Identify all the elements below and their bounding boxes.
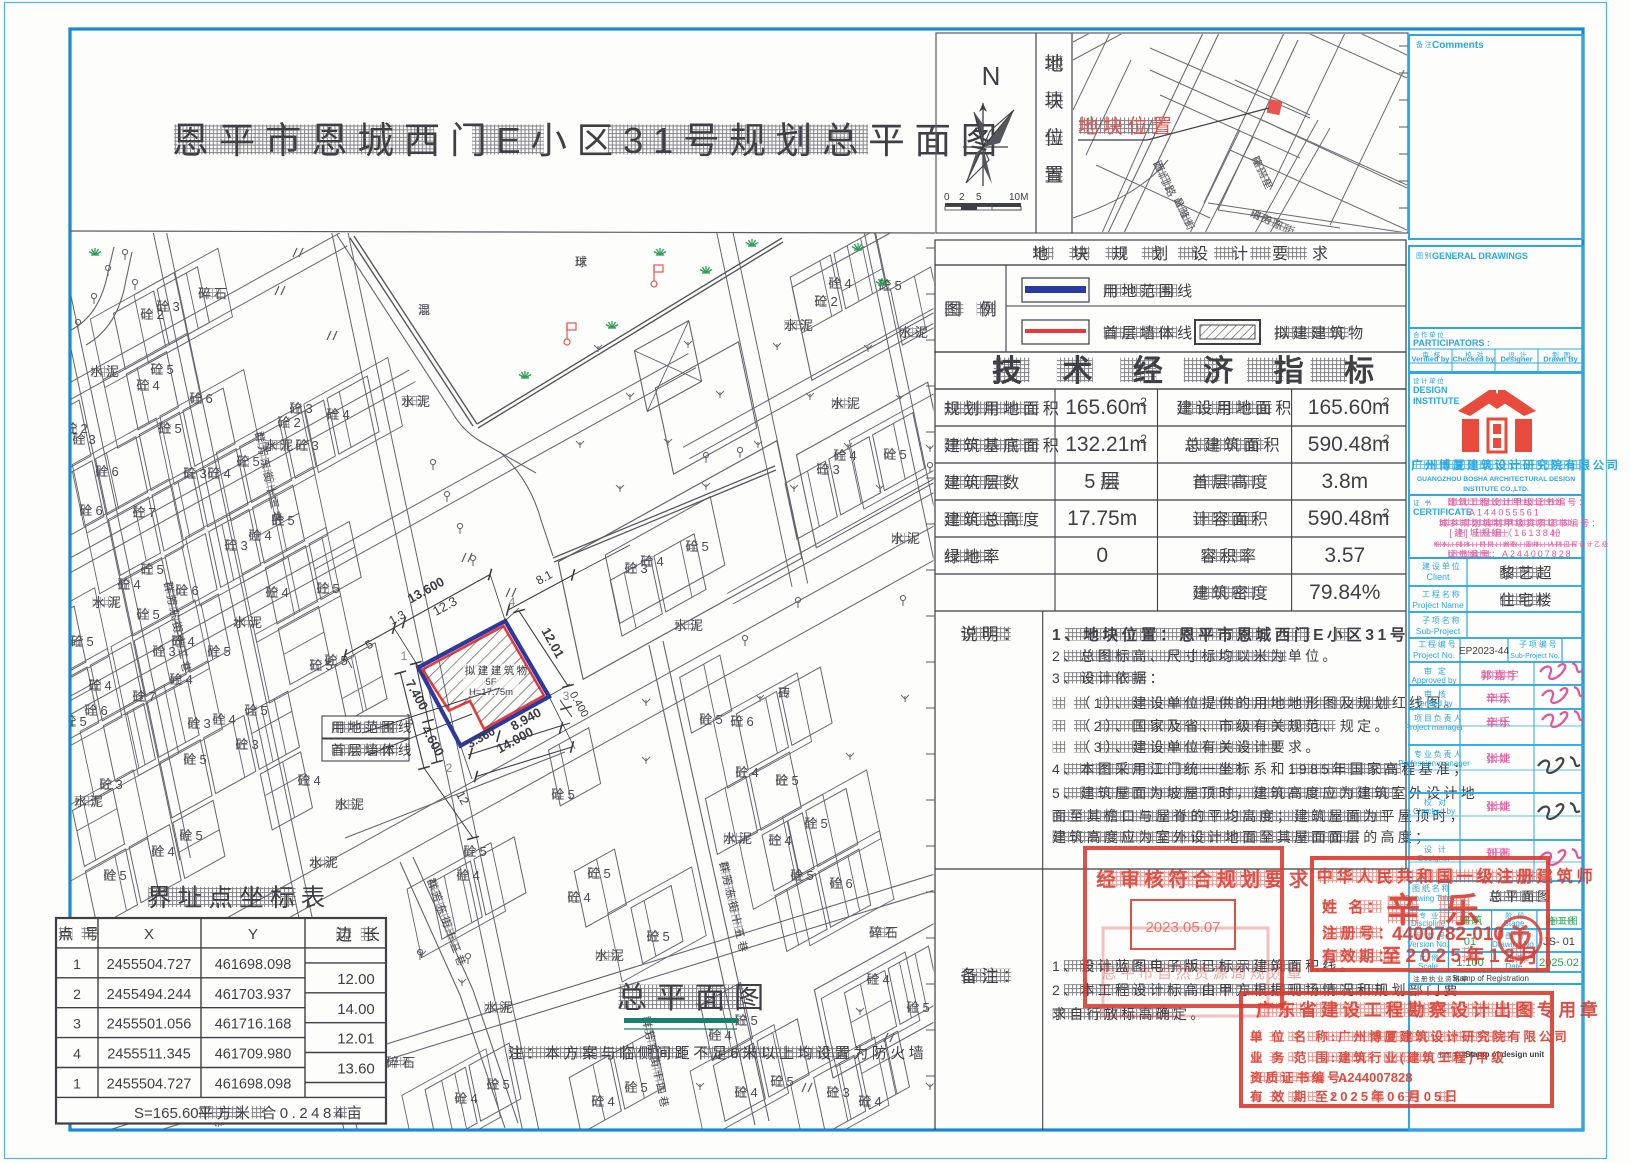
svg-text:砼3: 砼3 [187,716,213,731]
svg-text:砼4: 砼4 [735,765,761,780]
svg-text:4400782-010: 4400782-010 [1392,924,1504,945]
svg-text:砼6: 砼6 [730,714,756,729]
svg-text:3.57: 3.57 [1324,544,1365,567]
svg-text:2、总图标高、尺寸标均以米为单位。: 2、总图标高、尺寸标均以米为单位。 [1052,648,1340,664]
svg-text:位: 位 [1045,127,1068,149]
svg-text:审 核: 审 核 [1424,689,1448,699]
svg-text:审 定: 审 定 [1424,666,1448,676]
svg-text:姓 名：: 姓 名： [1322,898,1385,916]
svg-text:界址点坐标表: 界址点坐标表 [147,884,332,912]
svg-text:注册号：: 注册号： [1322,924,1396,942]
svg-text:建筑层数: 建筑层数 [944,474,1023,492]
svg-text:城乡规划编制甲级资质证书编号：: 城乡规划编制甲级资质证书编号： [1439,517,1602,528]
svg-text:总平面图: 总平面图 [617,982,773,1015]
svg-text:砼3: 砼3 [295,438,321,453]
svg-text:砼5: 砼5 [624,1080,650,1095]
svg-text:Designer: Designer [1500,355,1532,364]
svg-text:证 书: 证 书 [1413,498,1432,507]
svg-text:（2）、国家及省、市级有关规范、规定。: （2）、国家及省、市级有关规范、规定。 [1052,718,1392,734]
svg-text:拟建建筑物: 拟建建筑物 [465,664,530,677]
svg-text:水泥: 水泥 [484,1000,516,1015]
svg-text:PARTICIPATORS :: PARTICIPATORS : [1413,338,1490,348]
svg-text:水泥: 水泥 [233,615,265,630]
svg-text:建筑基底面积: 建筑基底面积 [944,437,1063,455]
svg-text:461698.098: 461698.098 [215,1077,292,1093]
svg-text:砼4: 砼4 [591,1094,617,1109]
svg-text:砼3: 砼3 [183,466,209,481]
svg-text:面至其檐口与屋脊的平均高度；建筑屋面为平屋顶时，: 面至其檐口与屋脊的平均高度；建筑屋面为平屋顶时， [1052,808,1467,825]
svg-text:12.01: 12.01 [538,625,567,661]
svg-text:经审核符合规划要求: 经审核符合规划要求 [1096,868,1313,891]
svg-text:砼2: 砼2 [140,307,166,322]
svg-text:461709.980: 461709.980 [215,1047,292,1063]
svg-text:计容面积: 计容面积 [1193,511,1272,529]
svg-text:Sub-Project No.: Sub-Project No. [1510,653,1559,660]
svg-text:住宅楼: 住宅楼 [1500,592,1556,609]
svg-text:12: 12 [453,789,472,808]
svg-text:有 效 期 至:: 有 效 期 至: [1250,1089,1338,1104]
svg-text:砼3: 砼3 [289,401,315,416]
svg-text:2455504.727: 2455504.727 [107,1077,192,1093]
svg-text:1: 1 [73,1076,81,1092]
svg-text:砼4: 砼4 [326,407,352,422]
svg-text:砼5: 砼5 [770,1074,796,1089]
svg-text:Client: Client [1426,572,1450,582]
svg-text:西门路: 西门路 [1150,158,1180,201]
svg-text:79.84%: 79.84% [1309,581,1380,604]
svg-text:资质证书编号:: 资质证书编号: [1250,1070,1350,1085]
svg-text:建设单位: 建设单位 [1422,561,1462,571]
svg-text:Project No.: Project No. [1413,650,1455,660]
svg-text:碎石: 碎石 [386,1055,418,1070]
svg-text:水泥: 水泥 [335,797,367,812]
svg-text:12.00: 12.00 [337,971,375,988]
svg-text:砼5: 砼5 [790,868,816,883]
svg-text:拟建建筑物: 拟建建筑物 [1274,325,1367,342]
svg-text:砼4: 砼4 [858,1094,884,1109]
svg-text:砼3: 砼3 [235,737,261,752]
svg-text:注：本方案与临侧间距不足6米以上均设置为防火墙: 注：本方案与临侧间距不足6米以上均设置为防火墙 [508,1044,927,1062]
svg-text:总平面图: 总平面图 [1489,889,1553,904]
svg-text:首层墙体线: 首层墙体线 [331,743,414,758]
svg-text:建筑工程设计甲级证书编号：: 建筑工程设计甲级证书编号： [1448,496,1589,507]
svg-text:业 务 范 围:建筑行业(建筑工程)甲级: 业 务 范 围:建筑行业(建筑工程)甲级 [1250,1050,1507,1065]
svg-text:水泥: 水泥 [723,831,755,846]
svg-text:INSTITUTE CO.,LTD.: INSTITUTE CO.,LTD. [1463,486,1529,493]
svg-text:CERTIFICATE: CERTIFICATE [1413,507,1472,517]
svg-text:0: 0 [1096,544,1108,567]
svg-text:砼5: 砼5 [646,929,672,944]
svg-text:590.48m: 590.48m [1308,507,1390,530]
svg-text:461698.098: 461698.098 [215,957,292,973]
svg-text:隆兴里: 隆兴里 [1249,154,1276,193]
svg-text:张婕: 张婕 [1486,751,1513,765]
svg-text:施工图: 施工图 [1547,915,1580,926]
svg-text:砼5: 砼5 [685,539,711,554]
svg-text:1.3: 1.3 [386,607,408,627]
svg-text:5: 5 [976,192,982,203]
svg-text:项目负责人: 项目负责人 [1414,713,1463,723]
svg-text:砼5: 砼5 [324,653,350,668]
svg-text:S=165.60: S=165.60 [134,1105,199,1122]
svg-text:17.75m: 17.75m [1067,507,1137,530]
svg-text:平方米 合0.2484亩: 平方米 合0.2484亩 [198,1104,365,1122]
svg-text:砼4: 砼4 [456,868,482,883]
svg-text:砼2: 砼2 [277,415,303,430]
svg-text:边 长: 边 长 [336,926,384,944]
svg-text:Stamp of Registration: Stamp of Registration [1452,974,1529,983]
svg-text:2: 2 [1140,395,1147,409]
svg-text:8.1: 8.1 [533,567,555,587]
svg-text:砼5: 砼5 [179,828,205,843]
svg-text:A244007828: A244007828 [1338,1070,1412,1085]
svg-text:球: 球 [575,255,590,269]
svg-text:Sub-Project: Sub-Project [1416,626,1461,636]
svg-text:砼3: 砼3 [816,462,842,477]
svg-text:Comments: Comments [1432,40,1484,51]
svg-text:容积率: 容积率 [1201,548,1260,566]
svg-text:Y: Y [248,926,258,943]
svg-text:砼5: 砼5 [136,607,162,622]
svg-text:建筑总高度: 建筑总高度 [944,511,1043,529]
svg-text:13.60: 13.60 [337,1061,375,1078]
svg-text:水泥: 水泥 [831,396,863,411]
svg-text:14.00: 14.00 [337,1001,375,1018]
svg-text:砼4: 砼4 [136,378,162,393]
svg-text:用地范围线: 用地范围线 [1103,283,1196,300]
svg-text:砼4: 砼4 [567,890,593,905]
svg-text:1: 1 [401,649,408,663]
svg-text:砼5: 砼5 [140,562,166,577]
svg-text:砼5: 砼5 [551,787,577,802]
svg-text:砼7: 砼7 [132,505,158,520]
svg-text:碎石: 碎石 [869,925,901,940]
svg-text:图 例: 图 例 [944,300,1004,319]
svg-text:碎石: 碎石 [198,286,230,301]
svg-text:砼4: 砼4 [833,448,859,463]
svg-text:132.21m: 132.21m [1065,433,1147,456]
svg-text:砼3: 砼3 [72,432,98,447]
svg-text:砼5: 砼5 [906,1000,932,1015]
svg-text:恩平市自然资源局规划章: 恩平市自然资源局规划章 [1102,964,1306,982]
svg-text:砼5: 砼5 [734,1013,760,1028]
svg-text:2455501.056: 2455501.056 [107,1017,192,1033]
svg-text:10M: 10M [1009,192,1028,203]
svg-text:Project Name: Project Name [1412,600,1464,610]
svg-text:给水、排水、桥梁、道路、园林、人防工程设计乙级: 给水、排水、桥梁、道路、园林、人防工程设计乙级 [1434,541,1610,549]
svg-text:求自行放标高确定。: 求自行放标高确定。 [1052,1006,1208,1022]
svg-text:砼5: 砼5 [316,581,342,596]
svg-text:砼3: 砼3 [224,538,250,553]
svg-text:2: 2 [959,192,965,203]
svg-text:黎艺超: 黎艺超 [1500,565,1556,582]
svg-text:4: 4 [73,1046,81,1062]
svg-text:A144055561: A144055561 [1469,507,1541,517]
svg-text:4.600: 4.600 [418,723,447,759]
svg-text:规划用地面积: 规划用地面积 [944,400,1063,418]
svg-text:砼4: 砼4 [265,585,291,600]
svg-text:广东省建设工程勘察设计出图专用章: 广东省建设工程勘察设计出图专用章 [1256,1000,1602,1020]
svg-text:混: 混 [418,303,433,317]
svg-text:首层高度: 首层高度 [1193,474,1272,492]
svg-text:砼2: 砼2 [814,294,840,309]
svg-text:DESIGN: DESIGN [1413,385,1448,395]
svg-text:砼4: 砼4 [454,1091,480,1106]
svg-text:砼4: 砼4 [212,712,238,727]
svg-text:砼5: 砼5 [463,844,489,859]
svg-text:砼5: 砼5 [699,712,725,727]
svg-text:砼4: 砼4 [708,1028,734,1043]
svg-text:砼6: 砼6 [95,464,121,479]
svg-text:水泥: 水泥 [92,595,124,610]
svg-text:2、本工程设计标高由甲方根据现场情况和规划部门要: 2、本工程设计标高由甲方根据现场情况和规划部门要 [1052,982,1461,998]
svg-text:2025.02: 2025.02 [1539,957,1579,969]
svg-text:砼6: 砼6 [79,503,105,518]
svg-text:中华人民共和国一级注册建筑师: 中华人民共和国一级注册建筑师 [1317,867,1597,886]
svg-text:2: 2 [446,761,453,775]
svg-text:砼5: 砼5 [207,644,233,659]
svg-text:0: 0 [944,192,950,203]
svg-text:1: 1 [73,956,81,972]
svg-text:块: 块 [1045,90,1068,112]
svg-text:2025年06月05日: 2025年06月05日 [1330,1089,1460,1104]
svg-text:水泥: 水泥 [891,531,923,546]
svg-text:2: 2 [1383,432,1390,446]
svg-text:X: X [144,926,154,943]
svg-text:INSTITUTE: INSTITUTE [1413,396,1460,406]
svg-text:590.48m: 590.48m [1308,433,1390,456]
svg-text:Verified by: Verified by [1415,699,1452,708]
svg-text:2455494.244: 2455494.244 [107,987,192,1003]
svg-text:砼3: 砼3 [826,1085,852,1100]
svg-text:2: 2 [73,986,81,1002]
svg-text:Checked by: Checked by [1452,355,1495,364]
svg-text:Profession manager: Profession manager [1398,759,1470,768]
svg-text:砼4: 砼4 [151,844,177,859]
svg-text:郭嘉宇: 郭嘉宇 [1481,668,1522,682]
svg-text:[建]城规编（161384）: [建]城规编（161384） [1450,527,1569,538]
svg-text:单 位 名 称:广州博厦建筑设计研究院有限公司: 单 位 名 称:广州博厦建筑设计研究院有限公司 [1250,1029,1570,1044]
svg-text:恩平市恩城西门E小区31号规划总平面图: 恩平市恩城西门E小区31号规划总平面图 [172,120,1007,161]
svg-text:2: 2 [1383,395,1390,409]
svg-text:工程名称: 工程名称 [1422,589,1462,599]
svg-text:2: 2 [1383,506,1390,520]
svg-text:设 计: 设 计 [1424,844,1448,854]
svg-text:辛乐: 辛乐 [1486,715,1513,729]
svg-text:（3）、建设单位有关设计要求。: （3）、建设单位有关设计要求。 [1052,739,1323,755]
svg-text:瑞芳东街: 瑞芳东街 [1249,207,1299,239]
svg-text:12.3: 12.3 [430,593,459,618]
svg-text:专业负责人: 专业负责人 [1414,749,1463,759]
svg-text:砼3: 砼3 [99,777,125,792]
svg-text:辛乐: 辛乐 [1486,691,1513,705]
svg-text:砼4: 砼4 [88,678,114,693]
svg-text:2455511.345: 2455511.345 [107,1047,191,1063]
svg-text:GENERAL DRAWINGS: GENERAL DRAWINGS [1432,251,1528,261]
svg-text:建筑密度: 建筑密度 [1193,585,1272,603]
svg-text:GUANGZHOU BOSHA ARCHITECTURAL: GUANGZHOU BOSHA ARCHITECTURAL DESIGN [1417,476,1575,483]
svg-text:165.60m: 165.60m [1308,396,1390,419]
svg-text:2: 2 [1140,432,1147,446]
svg-text:Project manager: Project manager [1405,723,1464,732]
svg-text:砼3: 砼3 [624,561,650,576]
svg-text:建设用地面积: 建设用地面积 [1177,400,1296,418]
svg-text:水泥: 水泥 [309,855,341,870]
svg-text:首层墙体线: 首层墙体线 [1103,325,1196,342]
svg-text:Checked by: Checked by [1413,807,1455,816]
svg-text:校 对: 校 对 [1424,797,1448,807]
svg-text:（1）、建设单位提供的用地地形图及规划红线图。: （1）、建设单位提供的用地地形图及规划红线图。 [1052,695,1461,711]
svg-text:水泥: 水泥 [90,364,122,379]
svg-text:建筑高度应为室外设计地面至其屋面面层的高度；: 建筑高度应为室外设计地面至其屋面面层的高度； [1052,829,1432,846]
svg-text:地块位置: 地块位置 [1078,115,1177,138]
svg-text:子项名称: 子项名称 [1422,615,1462,625]
svg-text:12.01: 12.01 [337,1031,375,1048]
svg-text:砼4: 砼4 [828,276,854,291]
svg-text:砼5: 砼5 [103,868,129,883]
svg-text:砼4: 砼4 [297,773,323,788]
svg-text:砼6: 砼6 [189,391,215,406]
svg-text:砼4: 砼4 [768,833,794,848]
svg-text:砼5: 砼5 [587,866,613,881]
svg-text:昌隆街: 昌隆街 [1171,195,1198,234]
svg-text:砼5: 砼5 [183,752,209,767]
svg-text:地 块 规 划 设 计 要 求: 地 块 规 划 设 计 要 求 [1032,245,1338,263]
svg-text:Verified by: Verified by [1412,355,1451,364]
svg-text:Drawn By: Drawn By [1543,355,1578,364]
svg-text:砖: 砖 [778,685,793,700]
svg-text:砼4: 砼4 [248,528,274,543]
svg-text:点 号: 点 号 [58,926,103,943]
svg-text:砼5: 砼5 [804,816,830,831]
svg-text:EP2023-44: EP2023-44 [1459,646,1509,657]
svg-text:说明：: 说明： [961,625,1024,644]
svg-text:3: 3 [73,1016,81,1032]
svg-text:水泥: 水泥 [595,948,627,963]
svg-text:砼5: 砼5 [70,634,96,649]
svg-text:砼5: 砼5 [63,714,89,729]
svg-text:砼6: 砼6 [175,583,201,598]
svg-text:设计单位: 设计单位 [1413,376,1445,385]
svg-text:水泥: 水泥 [899,325,931,340]
svg-text:砼4: 砼4 [117,577,143,592]
svg-text:5层: 5层 [1084,471,1125,493]
svg-text:1、地块位置：恩平市恩城西门E小区31号: 1、地块位置：恩平市恩城西门E小区31号 [1052,625,1409,644]
svg-text:砼7: 砼7 [132,689,158,704]
svg-text:绿地率: 绿地率 [944,548,1003,566]
svg-text:3、设计依据：: 3、设计依据： [1052,670,1167,686]
svg-text:砼5: 砼5 [883,447,909,462]
svg-text:水泥: 水泥 [74,794,106,809]
svg-text:砼5: 砼5 [244,703,270,718]
svg-text:广州博厦建筑设计研究院有限公司: 广州博厦建筑设计研究院有限公司 [1411,458,1620,472]
svg-text:子项编号: 子项编号 [1519,639,1559,649]
svg-text:砼4: 砼4 [207,466,233,481]
svg-text:3.8m: 3.8m [1321,470,1368,493]
svg-text:砼5: 砼5 [158,421,184,436]
svg-text:备注: 备注 [1416,40,1433,49]
svg-text:水泥: 水泥 [401,394,433,409]
svg-text:技 术 经 济 指 标: 技 术 经 济 指 标 [992,354,1390,388]
svg-text:砼5: 砼5 [150,362,176,377]
svg-text:砼4: 砼4 [734,1085,760,1100]
svg-text:备注：: 备注： [961,967,1024,986]
svg-text:砼5: 砼5 [486,1077,512,1092]
svg-text:工程编号: 工程编号 [1418,639,1458,649]
svg-text:张婕: 张婕 [1486,799,1513,813]
svg-text:2455504.727: 2455504.727 [107,957,192,973]
svg-text:用地范围线: 用地范围线 [331,720,414,735]
svg-text:地: 地 [1045,53,1068,75]
svg-text:砼6: 砼6 [829,876,855,891]
svg-text:461703.937: 461703.937 [215,987,292,1003]
svg-text:置: 置 [1045,165,1068,186]
svg-text:461716.168: 461716.168 [215,1017,292,1033]
svg-text:砼5: 砼5 [775,773,801,788]
svg-text:N: N [982,61,1001,91]
svg-text:Approved by: Approved by [1412,676,1457,685]
svg-text:165.60m: 165.60m [1065,396,1147,419]
svg-text:图别: 图别 [1416,251,1433,260]
svg-text:砼4: 砼4 [866,972,892,987]
svg-text:总建筑面积: 总建筑面积 [1185,437,1284,455]
